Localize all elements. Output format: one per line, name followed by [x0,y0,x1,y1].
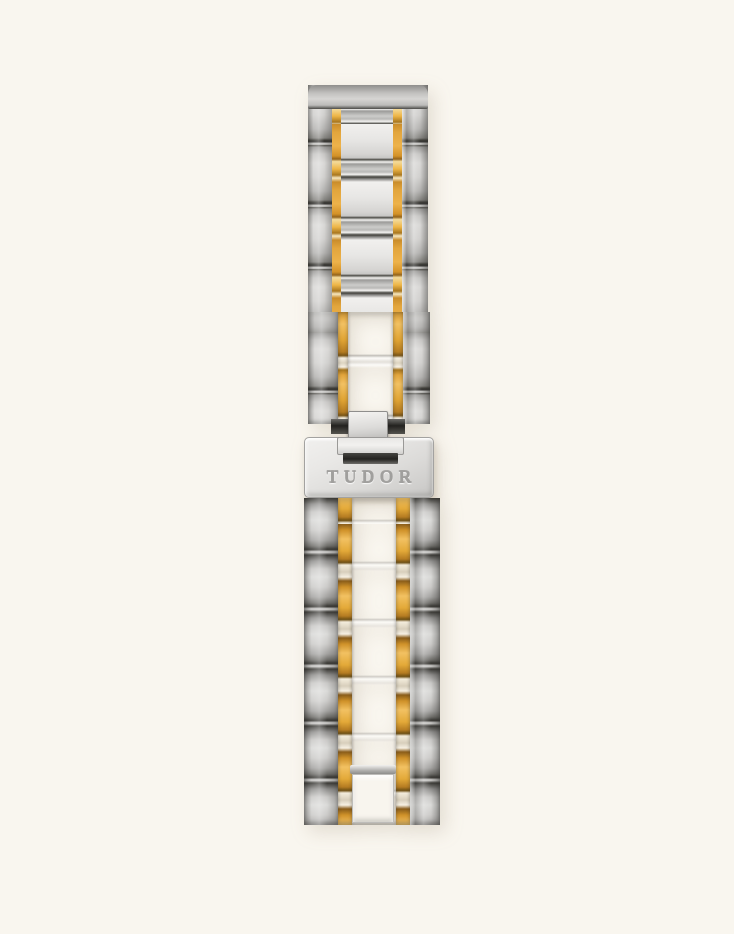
folding-clasp: TUDOR [304,437,434,498]
steel-link-column-left [308,312,338,424]
steel-link-column-right [403,312,430,424]
steel-link-column-left [308,85,332,312]
steel-link-column-left [304,498,338,825]
bracelet-end-link-top [308,85,428,109]
bracelet-upper-open-section [308,312,430,424]
open-center-gap [348,312,393,424]
bracelet-upper-section [308,85,428,312]
bracelet-end-link-bottom [352,774,394,823]
watch-bracelet: TUDOR [0,0,734,934]
gold-bar-right [396,498,410,825]
gold-bar-left [338,498,352,825]
gold-bar-left [332,85,341,312]
clasp-recess [343,453,398,464]
polished-center-links [341,85,393,312]
gold-bar-right [393,85,402,312]
steel-link-column-right [402,85,428,312]
steel-link-column-right [410,498,440,825]
gold-bar-left [338,312,348,424]
end-link-pin [350,765,396,774]
brand-engraving: TUDOR [305,467,438,488]
product-photo: TUDOR [0,0,734,934]
gold-bar-right [393,312,403,424]
